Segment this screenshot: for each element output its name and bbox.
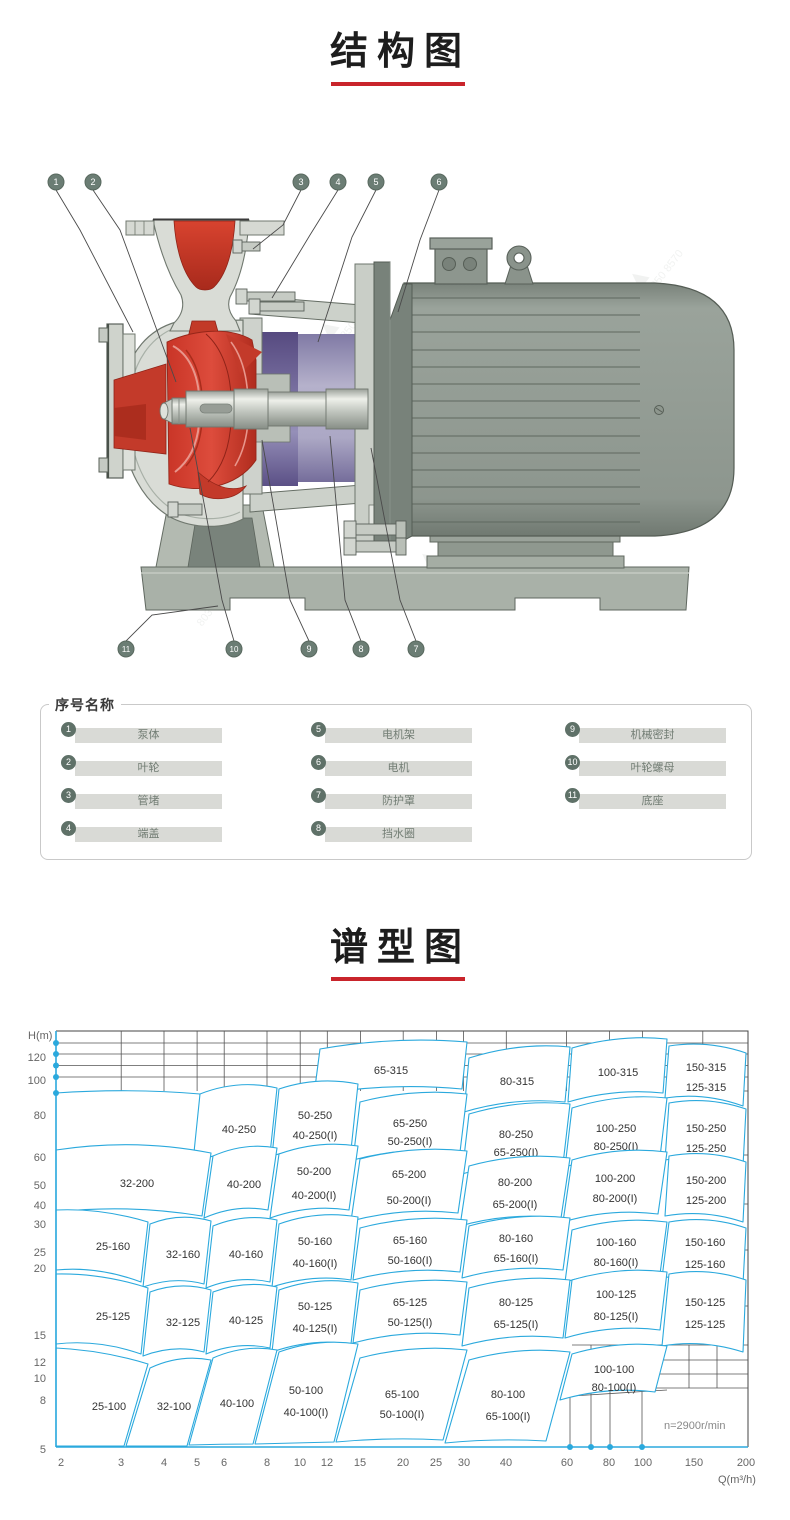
svg-text:40-125: 40-125 (229, 1315, 263, 1327)
svg-text:8: 8 (40, 1395, 46, 1407)
svg-text:7: 7 (413, 644, 418, 654)
svg-text:20: 20 (397, 1457, 409, 1469)
svg-text:65-200: 65-200 (392, 1169, 426, 1181)
svg-text:30: 30 (458, 1457, 470, 1469)
svg-text:15: 15 (34, 1330, 46, 1342)
svg-text:15: 15 (354, 1457, 366, 1469)
svg-text:6: 6 (221, 1457, 227, 1469)
svg-text:25-100: 25-100 (92, 1401, 126, 1413)
svg-text:Q(m³/h): Q(m³/h) (718, 1474, 756, 1486)
svg-text:50-125: 50-125 (298, 1301, 332, 1313)
svg-text:100-160: 100-160 (596, 1237, 636, 1249)
svg-text:100-125: 100-125 (596, 1289, 636, 1301)
svg-text:80-125(I): 80-125(I) (594, 1311, 639, 1323)
svg-text:100-200: 100-200 (595, 1173, 635, 1185)
svg-text:50: 50 (34, 1180, 46, 1192)
svg-text:50-250: 50-250 (298, 1110, 332, 1122)
svg-text:80-160: 80-160 (499, 1233, 533, 1245)
svg-text:10: 10 (230, 645, 239, 654)
svg-text:65-160: 65-160 (393, 1235, 427, 1247)
svg-text:80-100(I): 80-100(I) (592, 1382, 637, 1394)
svg-text:50-250(I): 50-250(I) (388, 1136, 433, 1148)
svg-text:65-250: 65-250 (393, 1118, 427, 1130)
svg-text:5: 5 (194, 1457, 200, 1469)
svg-text:150-125: 150-125 (685, 1297, 725, 1309)
svg-text:40-250: 40-250 (222, 1124, 256, 1136)
svg-text:80-315: 80-315 (500, 1076, 534, 1088)
svg-text:50-160: 50-160 (298, 1236, 332, 1248)
svg-text:40-160: 40-160 (229, 1249, 263, 1261)
svg-text:80: 80 (34, 1110, 46, 1122)
svg-text:12: 12 (321, 1457, 333, 1469)
svg-text:100: 100 (28, 1075, 46, 1087)
svg-text:100: 100 (634, 1457, 652, 1469)
svg-text:65-125(I): 65-125(I) (494, 1319, 539, 1331)
svg-text:32-160: 32-160 (166, 1249, 200, 1261)
svg-text:25: 25 (34, 1247, 46, 1259)
svg-text:65-125: 65-125 (393, 1297, 427, 1309)
svg-text:60: 60 (561, 1457, 573, 1469)
svg-text:50-160(I): 50-160(I) (388, 1255, 433, 1267)
svg-text:125-315: 125-315 (686, 1082, 726, 1094)
svg-text:11: 11 (122, 645, 131, 654)
svg-text:65-200(I): 65-200(I) (493, 1199, 538, 1211)
svg-text:10: 10 (294, 1457, 306, 1469)
svg-text:65-315: 65-315 (374, 1065, 408, 1077)
svg-text:100-250: 100-250 (596, 1123, 636, 1135)
svg-text:80-200(I): 80-200(I) (593, 1193, 638, 1205)
svg-text:40-160(I): 40-160(I) (293, 1258, 338, 1270)
svg-text:10: 10 (34, 1373, 46, 1385)
svg-text:32-200: 32-200 (120, 1178, 154, 1190)
svg-text:4: 4 (335, 177, 340, 187)
svg-text:80: 80 (603, 1457, 615, 1469)
svg-text:125-160: 125-160 (685, 1259, 725, 1271)
svg-text:150-200: 150-200 (686, 1175, 726, 1187)
svg-text:40-200(I): 40-200(I) (292, 1190, 337, 1202)
svg-text:32-100: 32-100 (157, 1401, 191, 1413)
svg-text:50-125(I): 50-125(I) (388, 1317, 433, 1329)
svg-text:2: 2 (58, 1457, 64, 1469)
svg-text:65-100(I): 65-100(I) (486, 1411, 531, 1423)
svg-text:150: 150 (685, 1457, 703, 1469)
svg-text:50-200: 50-200 (297, 1166, 331, 1178)
svg-text:5: 5 (373, 177, 378, 187)
svg-text:8: 8 (264, 1457, 270, 1469)
svg-text:40: 40 (500, 1457, 512, 1469)
svg-text:2: 2 (90, 177, 95, 187)
svg-text:65-160(I): 65-160(I) (494, 1253, 539, 1265)
svg-text:3: 3 (118, 1457, 124, 1469)
svg-text:5: 5 (40, 1444, 46, 1456)
svg-text:60: 60 (34, 1152, 46, 1164)
svg-text:40: 40 (34, 1200, 46, 1212)
svg-text:150-250: 150-250 (686, 1123, 726, 1135)
svg-text:30: 30 (34, 1219, 46, 1231)
svg-text:100-315: 100-315 (598, 1067, 638, 1079)
svg-text:32-125: 32-125 (166, 1317, 200, 1329)
svg-text:40-100: 40-100 (220, 1398, 254, 1410)
svg-text:125-125: 125-125 (685, 1319, 725, 1331)
svg-text:40-200: 40-200 (227, 1179, 261, 1191)
svg-text:40-250(I): 40-250(I) (293, 1130, 338, 1142)
svg-text:200: 200 (737, 1457, 755, 1469)
svg-text:25-125: 25-125 (96, 1311, 130, 1323)
svg-text:80-100: 80-100 (491, 1389, 525, 1401)
svg-text:80-125: 80-125 (499, 1297, 533, 1309)
svg-text:100-100: 100-100 (594, 1364, 634, 1376)
svg-text:25: 25 (430, 1457, 442, 1469)
svg-text:125-200: 125-200 (686, 1195, 726, 1207)
svg-text:40-125(I): 40-125(I) (293, 1323, 338, 1335)
svg-text:80-160(I): 80-160(I) (594, 1257, 639, 1269)
svg-text:80-200: 80-200 (498, 1177, 532, 1189)
svg-text:H(m): H(m) (28, 1030, 52, 1042)
svg-text:1: 1 (53, 177, 58, 187)
svg-text:25-160: 25-160 (96, 1241, 130, 1253)
svg-text:50-100: 50-100 (289, 1385, 323, 1397)
svg-text:40-100(I): 40-100(I) (284, 1407, 329, 1419)
svg-text:65-100: 65-100 (385, 1389, 419, 1401)
svg-text:12: 12 (34, 1357, 46, 1369)
svg-text:9: 9 (306, 644, 311, 654)
svg-text:8: 8 (358, 644, 363, 654)
svg-text:6: 6 (436, 177, 441, 187)
svg-text:50-200(I): 50-200(I) (387, 1195, 432, 1207)
svg-text:150-315: 150-315 (686, 1062, 726, 1074)
svg-text:n=2900r/min: n=2900r/min (664, 1420, 725, 1432)
svg-text:120: 120 (28, 1052, 46, 1064)
svg-text:20: 20 (34, 1263, 46, 1275)
svg-text:4: 4 (161, 1457, 167, 1469)
svg-text:80-250: 80-250 (499, 1129, 533, 1141)
svg-text:150-160: 150-160 (685, 1237, 725, 1249)
svg-text:50-100(I): 50-100(I) (380, 1409, 425, 1421)
svg-text:3: 3 (298, 177, 303, 187)
